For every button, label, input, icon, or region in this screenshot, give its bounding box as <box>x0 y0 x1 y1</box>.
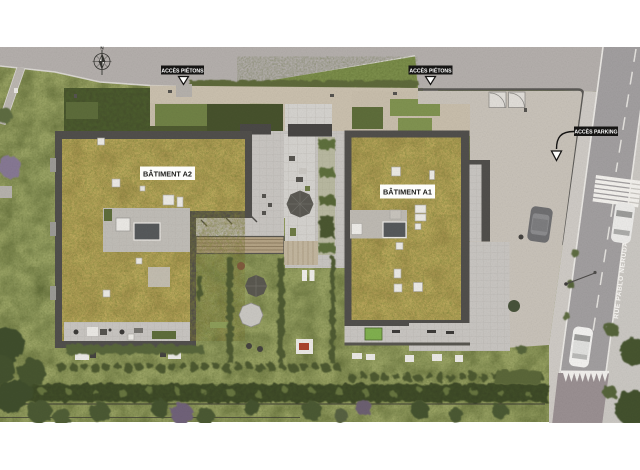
svg-text:ACCÈS PIÉTONS: ACCÈS PIÉTONS <box>161 66 204 74</box>
svg-text:BÂTIMENT A1: BÂTIMENT A1 <box>383 188 433 197</box>
svg-text:BÂTIMENT A2: BÂTIMENT A2 <box>143 169 192 178</box>
svg-text:ACCÈS PARKING: ACCÈS PARKING <box>574 128 617 136</box>
svg-text:ACCÈS PIÉTONS: ACCÈS PIÉTONS <box>409 66 452 74</box>
